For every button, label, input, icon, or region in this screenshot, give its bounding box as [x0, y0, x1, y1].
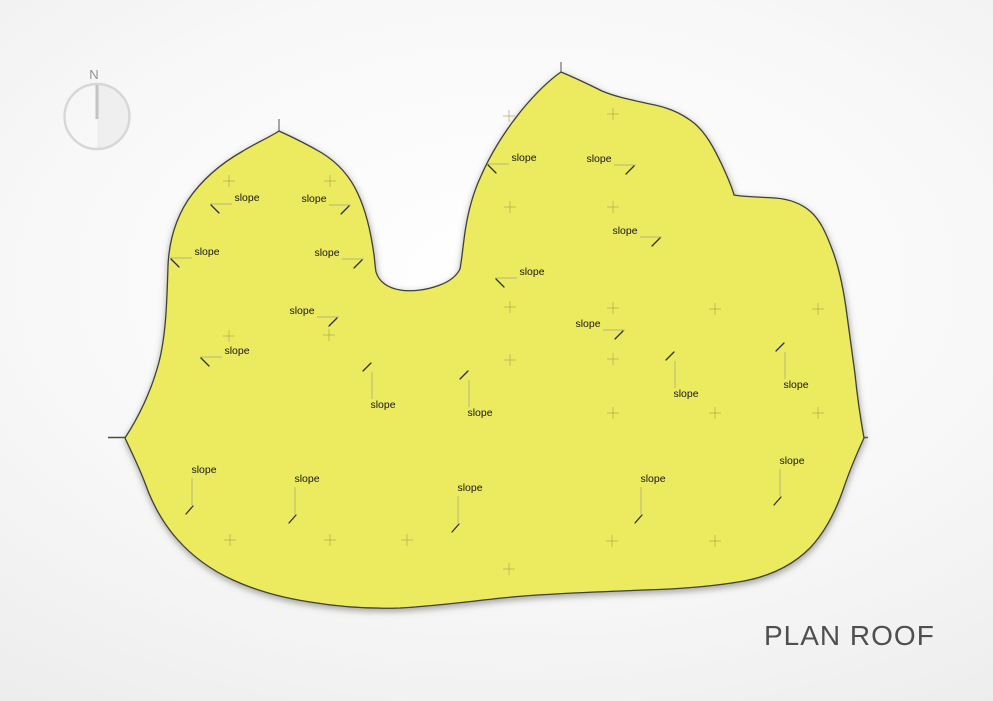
slope-label-text: slope	[301, 193, 326, 205]
roof-outline-stroke	[125, 72, 864, 608]
slope-label-text: slope	[575, 318, 600, 330]
slope-label-text: slope	[640, 473, 665, 485]
slope-label-text: slope	[234, 192, 259, 204]
drawing-canvas: N	[0, 0, 993, 701]
plan-title: PLAN ROOF	[764, 620, 935, 652]
slope-label-text: slope	[457, 482, 482, 494]
slope-label-text: slope	[612, 225, 637, 237]
slope-label-text: slope	[224, 345, 249, 357]
slope-label-text: slope	[370, 399, 395, 411]
slope-label-text: slope	[194, 246, 219, 258]
slope-label-text: slope	[779, 455, 804, 467]
slope-label-text: slope	[586, 153, 611, 165]
slope-label-text: slope	[467, 407, 492, 419]
slope-label-text: slope	[519, 266, 544, 278]
slope-label-text: slope	[294, 473, 319, 485]
north-compass: N	[65, 67, 130, 149]
slope-label-text: slope	[511, 152, 536, 164]
roof-plan-svg: N	[0, 0, 993, 701]
compass-half-fill	[97, 84, 129, 149]
north-label: N	[89, 67, 98, 82]
slope-label-text: slope	[673, 388, 698, 400]
slope-label-text: slope	[314, 247, 339, 259]
slope-label-text: slope	[289, 305, 314, 317]
slope-label-text: slope	[191, 464, 216, 476]
slope-label-text: slope	[783, 379, 808, 391]
